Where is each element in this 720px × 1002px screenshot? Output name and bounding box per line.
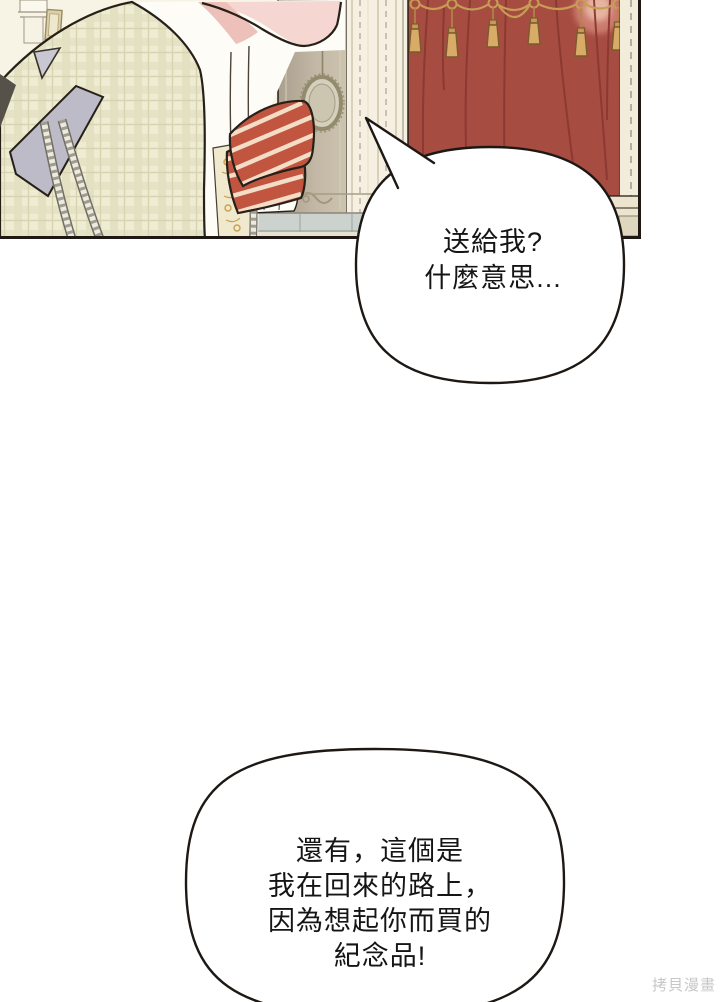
speech-line: 什麼意思...	[368, 260, 618, 296]
speech-line: 還有，這個是	[192, 834, 568, 869]
character	[0, 0, 345, 241]
comic-page: 送給我? 什麼意思... 還有，這個是 我在回來的路上， 因為想起你而買的 紀念…	[0, 0, 720, 1002]
speech-line: 因為想起你而買的	[192, 904, 568, 939]
speech-line: 我在回來的路上，	[192, 869, 568, 904]
speech-bubble-2-text: 還有，這個是 我在回來的路上， 因為想起你而買的 紀念品!	[192, 834, 568, 974]
watermark: 拷貝漫畫	[652, 974, 716, 995]
speech-bubble-1-text: 送給我? 什麼意思...	[368, 224, 618, 296]
speech-line: 送給我?	[368, 224, 618, 260]
speech-line: 紀念品!	[192, 939, 568, 974]
